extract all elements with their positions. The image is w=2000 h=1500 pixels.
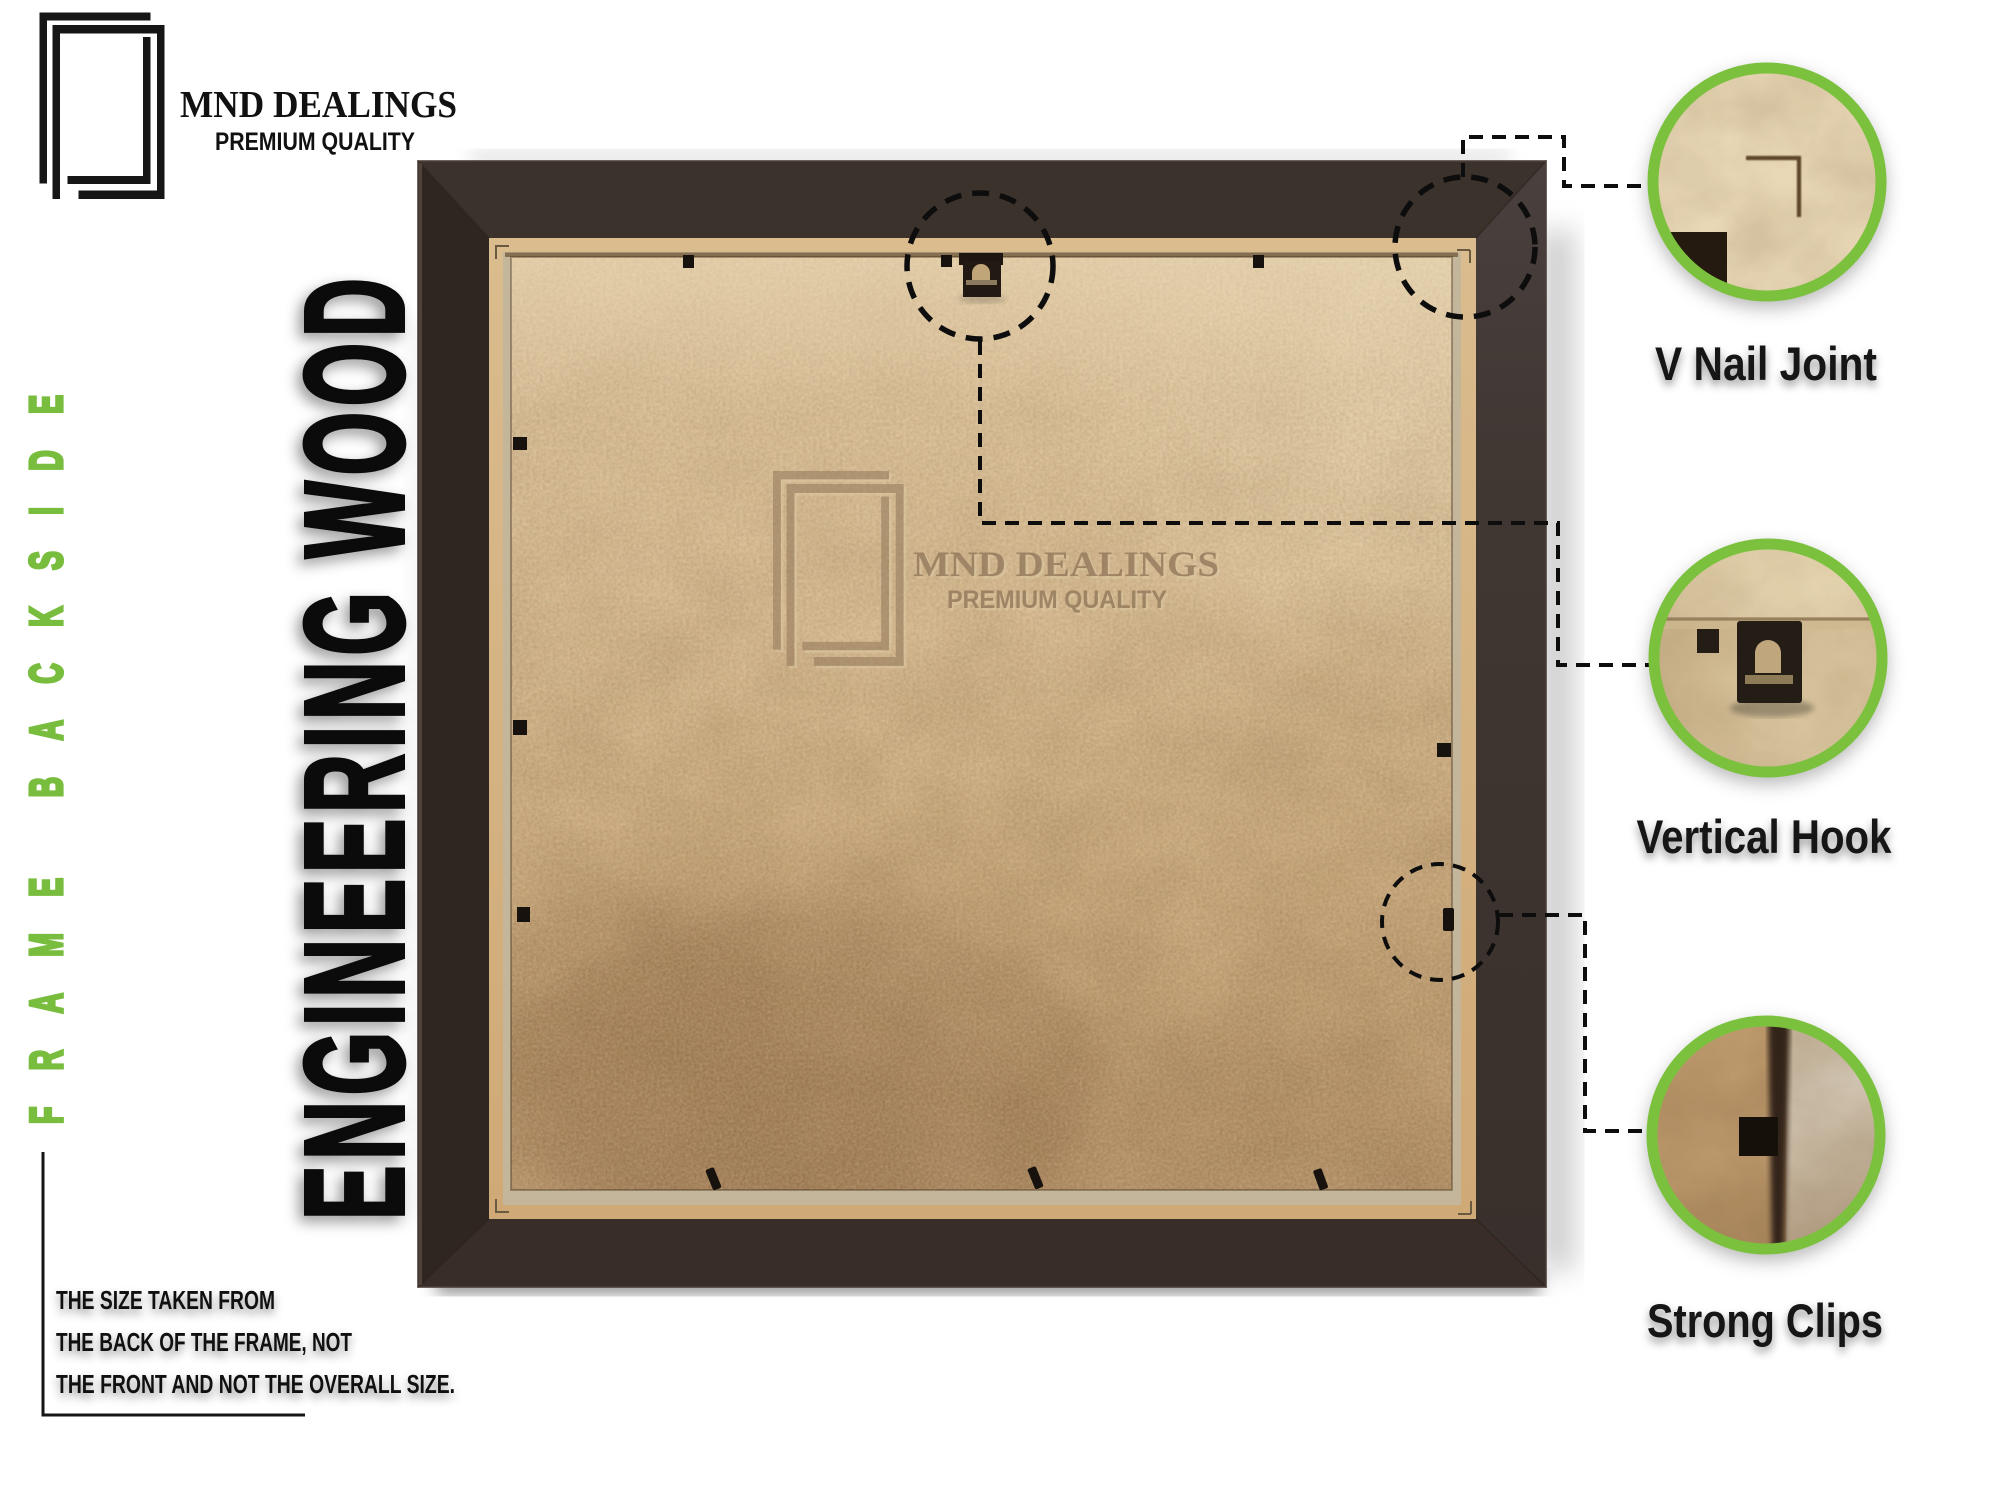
svg-text:Strong Clips: Strong Clips — [1647, 1294, 1883, 1347]
svg-text:MND DEALINGS: MND DEALINGS — [913, 544, 1219, 584]
svg-text:Vertical Hook: Vertical Hook — [1637, 810, 1893, 863]
svg-text:THE BACK OF THE FRAME, NOT: THE BACK OF THE FRAME, NOT — [56, 1329, 352, 1357]
svg-text:ENGINEERING WOOD: ENGINEERING WOOD — [277, 278, 434, 1220]
svg-text:PREMIUM QUALITY: PREMIUM QUALITY — [215, 128, 415, 156]
svg-text:THE FRONT AND NOT THE OVERALL: THE FRONT AND NOT THE OVERALL SIZE. — [56, 1371, 455, 1399]
svg-text:MND DEALINGS: MND DEALINGS — [180, 84, 457, 126]
svg-text:V Nail Joint: V Nail Joint — [1655, 337, 1877, 390]
svg-text:PREMIUM QUALITY: PREMIUM QUALITY — [947, 586, 1167, 614]
svg-text:THE SIZE TAKEN FROM: THE SIZE TAKEN FROM — [56, 1287, 275, 1315]
